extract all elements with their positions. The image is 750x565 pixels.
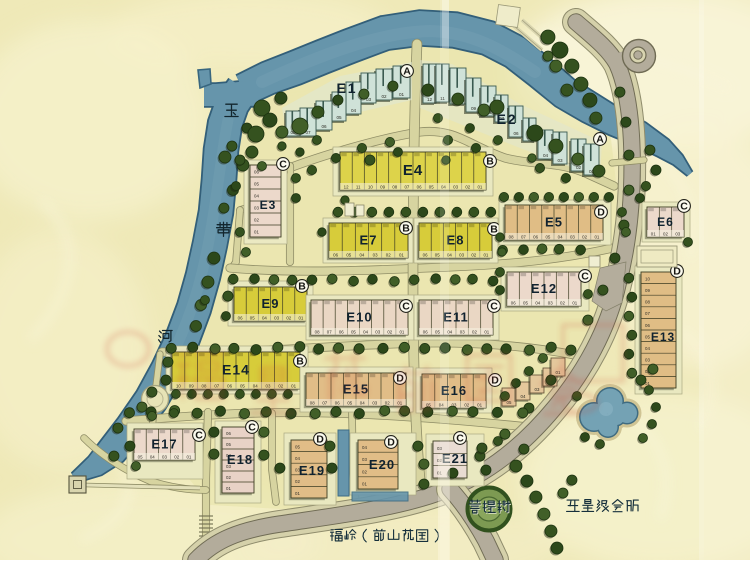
svg-text:C: C [195,430,203,442]
svg-text:02: 02 [226,475,231,480]
svg-text:05: 05 [435,329,440,334]
svg-text:05: 05 [435,252,440,257]
svg-text:B: B [486,156,494,168]
svg-text:06: 06 [227,383,232,388]
svg-text:E8: E8 [447,233,465,248]
svg-text:01: 01 [477,402,482,407]
svg-text:B: B [298,281,306,293]
svg-text:08: 08 [645,300,650,305]
svg-text:C: C [456,433,464,445]
svg-text:09: 09 [189,383,194,388]
svg-text:03: 03 [372,400,377,405]
svg-text:05: 05 [250,315,255,320]
svg-text:02: 02 [174,454,179,459]
svg-text:06: 06 [423,252,428,257]
svg-text:04: 04 [262,315,267,320]
svg-text:03: 03 [460,329,465,334]
svg-text:04: 04 [543,153,549,158]
svg-text:12: 12 [344,184,349,189]
svg-text:06: 06 [417,184,422,189]
svg-text:01: 01 [291,383,296,388]
svg-text:06: 06 [533,234,538,239]
svg-text:02: 02 [387,329,392,334]
svg-text:06: 06 [238,315,243,320]
svg-text:A: A [596,134,604,146]
svg-text:E7: E7 [360,233,378,248]
svg-text:E1: E1 [336,80,357,96]
svg-text:01: 01 [483,252,488,257]
svg-text:02: 02 [295,479,300,484]
svg-text:E14: E14 [222,362,250,378]
svg-text:D: D [597,207,605,219]
svg-text:06: 06 [226,431,231,436]
svg-text:05: 05 [645,334,650,339]
svg-text:01: 01 [399,92,405,97]
svg-text:E9: E9 [262,296,280,311]
svg-text:04: 04 [254,194,259,199]
svg-text:03: 03 [557,158,563,163]
svg-text:A: A [403,66,411,78]
svg-text:08: 08 [315,329,320,334]
svg-text:10: 10 [645,276,650,281]
svg-text:E5: E5 [545,215,563,230]
svg-text:05: 05 [351,329,356,334]
svg-text:06: 06 [333,252,338,257]
svg-text:04: 04 [360,400,365,405]
svg-text:E18: E18 [227,452,253,467]
svg-text:B: B [296,356,304,368]
svg-text:05: 05 [545,234,550,239]
svg-text:05: 05 [336,115,342,120]
svg-text:06: 06 [511,300,516,305]
svg-text:C: C [279,159,287,171]
svg-text:E17: E17 [151,437,177,452]
svg-text:05: 05 [346,252,351,257]
svg-text:01: 01 [484,329,489,334]
svg-text:06: 06 [423,329,428,334]
svg-text:03: 03 [645,358,650,363]
svg-text:03: 03 [362,457,367,462]
svg-text:01: 01 [226,486,231,491]
svg-text:02: 02 [560,300,565,305]
svg-text:04: 04 [535,300,540,305]
svg-text:E19: E19 [299,463,325,478]
svg-text:02: 02 [362,469,367,474]
svg-text:10: 10 [368,184,373,189]
svg-text:E3: E3 [260,198,277,212]
svg-text:01: 01 [572,300,577,305]
svg-text:09: 09 [471,106,477,111]
svg-text:02: 02 [385,400,390,405]
svg-text:04: 04 [645,346,650,351]
svg-text:04: 04 [521,394,526,399]
svg-text:02: 02 [286,315,291,320]
svg-text:B: B [402,223,410,235]
svg-text:E10: E10 [346,310,372,325]
svg-text:04: 04 [363,329,368,334]
svg-text:05: 05 [240,383,245,388]
svg-text:05: 05 [226,442,231,447]
svg-text:03: 03 [254,206,259,211]
svg-text:E4: E4 [403,162,423,179]
svg-text:07: 07 [521,234,526,239]
svg-text:E13: E13 [651,330,675,344]
svg-text:C: C [402,301,410,313]
svg-text:C: C [248,422,256,434]
svg-text:07: 07 [327,329,332,334]
svg-text:07: 07 [645,311,650,316]
svg-text:02: 02 [471,252,476,257]
svg-text:11: 11 [356,184,361,189]
svg-text:01: 01 [399,329,404,334]
svg-text:03: 03 [274,315,279,320]
svg-text:08: 08 [310,400,315,405]
svg-text:01: 01 [298,315,303,320]
svg-text:02: 02 [663,231,668,236]
svg-text:12: 12 [427,97,433,102]
svg-text:03: 03 [453,184,458,189]
svg-text:03: 03 [548,300,553,305]
svg-text:06: 06 [513,131,519,136]
svg-text:05: 05 [523,300,528,305]
svg-text:03: 03 [162,454,167,459]
svg-text:01: 01 [295,491,300,496]
svg-text:04: 04 [359,252,364,257]
svg-text:08: 08 [509,234,514,239]
svg-text:03: 03 [459,252,464,257]
svg-text:05: 05 [254,182,259,187]
svg-text:05: 05 [138,454,143,459]
svg-text:07: 07 [404,184,409,189]
svg-text:02: 02 [464,402,469,407]
svg-text:06: 06 [645,323,650,328]
svg-text:06: 06 [321,124,327,129]
svg-text:05: 05 [295,444,300,449]
svg-text:10: 10 [176,383,181,388]
svg-text:04: 04 [295,456,300,461]
svg-text:09: 09 [645,288,650,293]
svg-text:06: 06 [335,400,340,405]
svg-text:01: 01 [399,252,404,257]
svg-text:01: 01 [186,454,191,459]
svg-text:02: 02 [386,252,391,257]
svg-text:04: 04 [351,108,357,113]
svg-text:02: 02 [472,329,477,334]
svg-text:C: C [490,301,498,313]
svg-text:05: 05 [429,184,434,189]
svg-text:07: 07 [322,400,327,405]
svg-text:09: 09 [380,184,385,189]
svg-text:D: D [387,437,395,449]
svg-text:E6: E6 [657,215,674,229]
svg-text:02: 02 [254,218,259,223]
svg-text:03: 03 [570,234,575,239]
svg-text:06: 06 [339,329,344,334]
svg-text:03: 03 [535,387,540,392]
svg-text:01: 01 [254,230,259,235]
svg-text:03: 03 [375,329,380,334]
svg-text:04: 04 [150,454,155,459]
svg-text:04: 04 [558,234,563,239]
svg-text:03: 03 [373,252,378,257]
svg-text:04: 04 [253,383,258,388]
svg-text:03: 03 [675,231,680,236]
svg-text:E12: E12 [531,281,557,296]
svg-text:02: 02 [582,234,587,239]
svg-text:05: 05 [347,400,352,405]
svg-text:08: 08 [392,184,397,189]
svg-text:01: 01 [477,184,482,189]
svg-text:01: 01 [594,234,599,239]
svg-text:D: D [316,434,324,446]
svg-text:E20: E20 [369,457,395,472]
svg-text:C: C [581,271,589,283]
svg-text:02: 02 [465,184,470,189]
svg-text:02: 02 [381,94,387,99]
svg-text:C: C [680,201,688,213]
svg-text:04: 04 [362,445,367,450]
svg-text:01: 01 [362,482,367,487]
svg-text:01: 01 [651,231,656,236]
